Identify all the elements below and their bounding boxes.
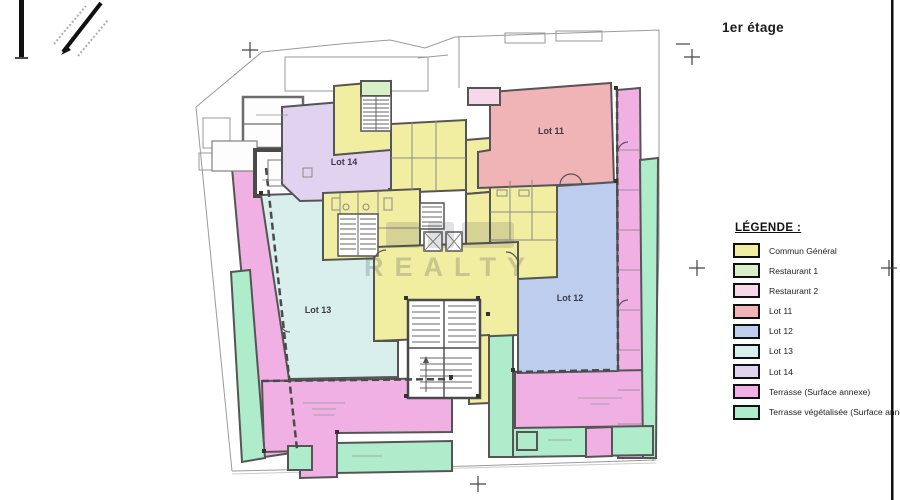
zone-restaurant2 xyxy=(468,88,500,105)
lot12-label: Lot 12 xyxy=(557,293,584,303)
legend: LÉGENDE : Commun Général Restaurant 1 Re… xyxy=(733,222,898,425)
legend-swatch-commun xyxy=(733,243,760,258)
legend-item: Terrasse (Surface annexe) xyxy=(733,384,898,399)
legend-swatch-lot14 xyxy=(733,364,760,379)
floor-plan-page: Lot 11 Lot 12 Lot 13 Lot 14 REALTY 1er é… xyxy=(0,0,900,500)
legend-swatch-terrasse-vegetalisee xyxy=(733,405,760,420)
legend-swatch-restaurant2 xyxy=(733,283,760,298)
lot11-label: Lot 11 xyxy=(538,126,564,136)
green-pad-east xyxy=(517,432,537,450)
lot14-label: Lot 14 xyxy=(331,157,358,167)
legend-swatch-lot12 xyxy=(733,324,760,339)
legend-swatch-restaurant1 xyxy=(733,263,760,278)
legend-title: LÉGENDE : xyxy=(735,222,898,234)
pen-mark-icon xyxy=(54,3,108,56)
sheet-edge-bar xyxy=(19,0,24,57)
legend-swatch-lot13 xyxy=(733,344,760,359)
legend-item: Restaurant 2 xyxy=(733,283,898,298)
zone-green-terrace-east xyxy=(640,158,658,458)
legend-item: Lot 14 xyxy=(733,364,898,379)
page-title: 1er étage xyxy=(722,20,784,35)
legend-item: Commun Général xyxy=(733,243,898,258)
zone-restaurant1 xyxy=(361,81,391,96)
zone-common-core-north xyxy=(391,120,466,193)
legend-swatch-terrasse xyxy=(733,384,760,399)
zone-terrace-notch xyxy=(586,427,612,457)
legend-item: Lot 12 xyxy=(733,324,898,339)
legend-item: Lot 11 xyxy=(733,304,898,319)
legend-item: Restaurant 1 xyxy=(733,263,898,278)
lot13-label: Lot 13 xyxy=(305,305,332,315)
legend-item: Terrasse végétalisée (Surface annexe) xyxy=(733,405,898,420)
zone-common-link-south xyxy=(466,192,490,249)
zone-green-terrace-south xyxy=(337,441,452,473)
legend-item: Lot 13 xyxy=(733,344,898,359)
green-pad-west xyxy=(288,446,312,470)
legend-swatch-lot11 xyxy=(733,304,760,319)
